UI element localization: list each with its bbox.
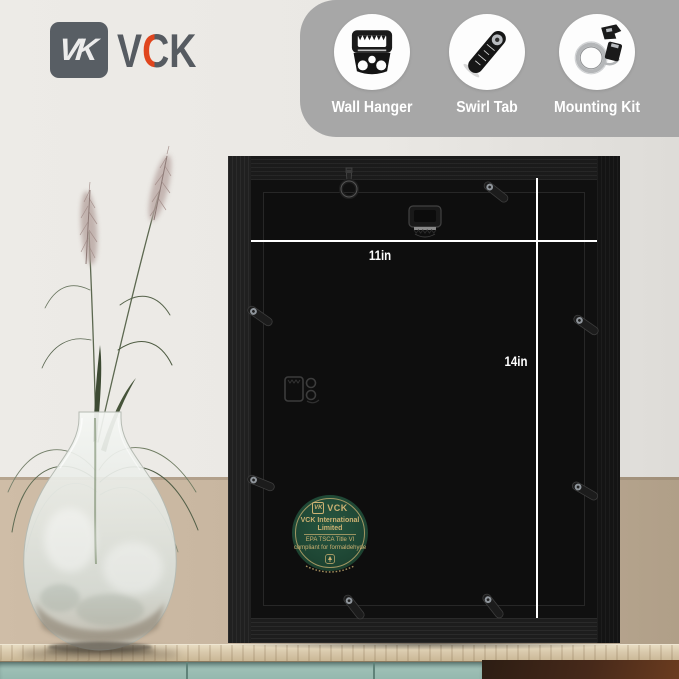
- grass-plume: [144, 146, 176, 223]
- tree-icon: [325, 554, 335, 564]
- feature-label: Swirl Tab: [438, 99, 537, 117]
- picture-frame-back: 11in 14in: [228, 156, 620, 643]
- sticker-line: compliant for formaldehyde: [292, 545, 368, 553]
- feature-band: Wall Hanger: [300, 0, 679, 137]
- brand-badge: VK: [50, 22, 108, 78]
- feature-circle: [334, 14, 410, 90]
- grass-plume: [78, 182, 99, 265]
- brand-logo: VK VCK: [50, 22, 216, 78]
- sticker-curved-text: [300, 564, 360, 576]
- brand-letter: V: [117, 27, 142, 74]
- height-label: 14in: [505, 353, 528, 369]
- feature-circle: [449, 14, 525, 90]
- compliance-sticker: VK VCK VCK International Limited EPA TSC…: [292, 495, 368, 571]
- brand-wordmark: VCK: [117, 27, 196, 74]
- frame-edge-top: [228, 156, 620, 180]
- feature-item-wall-hanger: Wall Hanger: [316, 14, 428, 117]
- brand-monogram: VK: [58, 32, 101, 68]
- cabinet-seam: [373, 662, 375, 679]
- feature-item-mounting-kit: Mounting Kit: [541, 14, 653, 117]
- wall-hanger-icon: [341, 21, 403, 83]
- feature-label: Wall Hanger: [323, 99, 422, 117]
- brand-letter-accent: C: [142, 27, 169, 74]
- sticker-line: EPA TSCA Title VI: [292, 537, 368, 545]
- feature-item-swirl-tab: Swirl Tab: [431, 14, 543, 117]
- product-photo: VK VCK Wall Hanger: [0, 0, 679, 679]
- dimension-line-horizontal: [251, 240, 597, 242]
- frame-edge-right: [597, 156, 620, 643]
- sawtooth-hanger-icon: [406, 204, 444, 240]
- sticker-brand-badge: VK: [312, 502, 324, 514]
- sticker-logo: VK VCK: [292, 502, 368, 514]
- cabinet-dark-panel: [482, 660, 679, 679]
- mounting-kit-icon: [566, 21, 628, 83]
- feature-circle: [559, 14, 635, 90]
- sticker-title: VCK International Limited: [292, 517, 368, 532]
- d-ring-hanger-icon: [338, 167, 360, 203]
- frame-edge-bottom: [228, 618, 620, 643]
- width-label: 11in: [369, 247, 391, 263]
- vase-with-dried-grass: [0, 140, 215, 670]
- side-sawtooth-hanger-icon: [283, 372, 323, 406]
- sticker-brand-name: VCK: [327, 503, 348, 513]
- feature-label: Mounting Kit: [548, 99, 647, 117]
- frame-edge-left: [228, 156, 251, 643]
- glass-vase: [24, 412, 176, 652]
- swirl-tab-icon: [456, 21, 518, 83]
- dimension-line-vertical: [536, 178, 538, 618]
- brand-letter: K: [169, 27, 196, 74]
- sticker-divider: [304, 534, 356, 535]
